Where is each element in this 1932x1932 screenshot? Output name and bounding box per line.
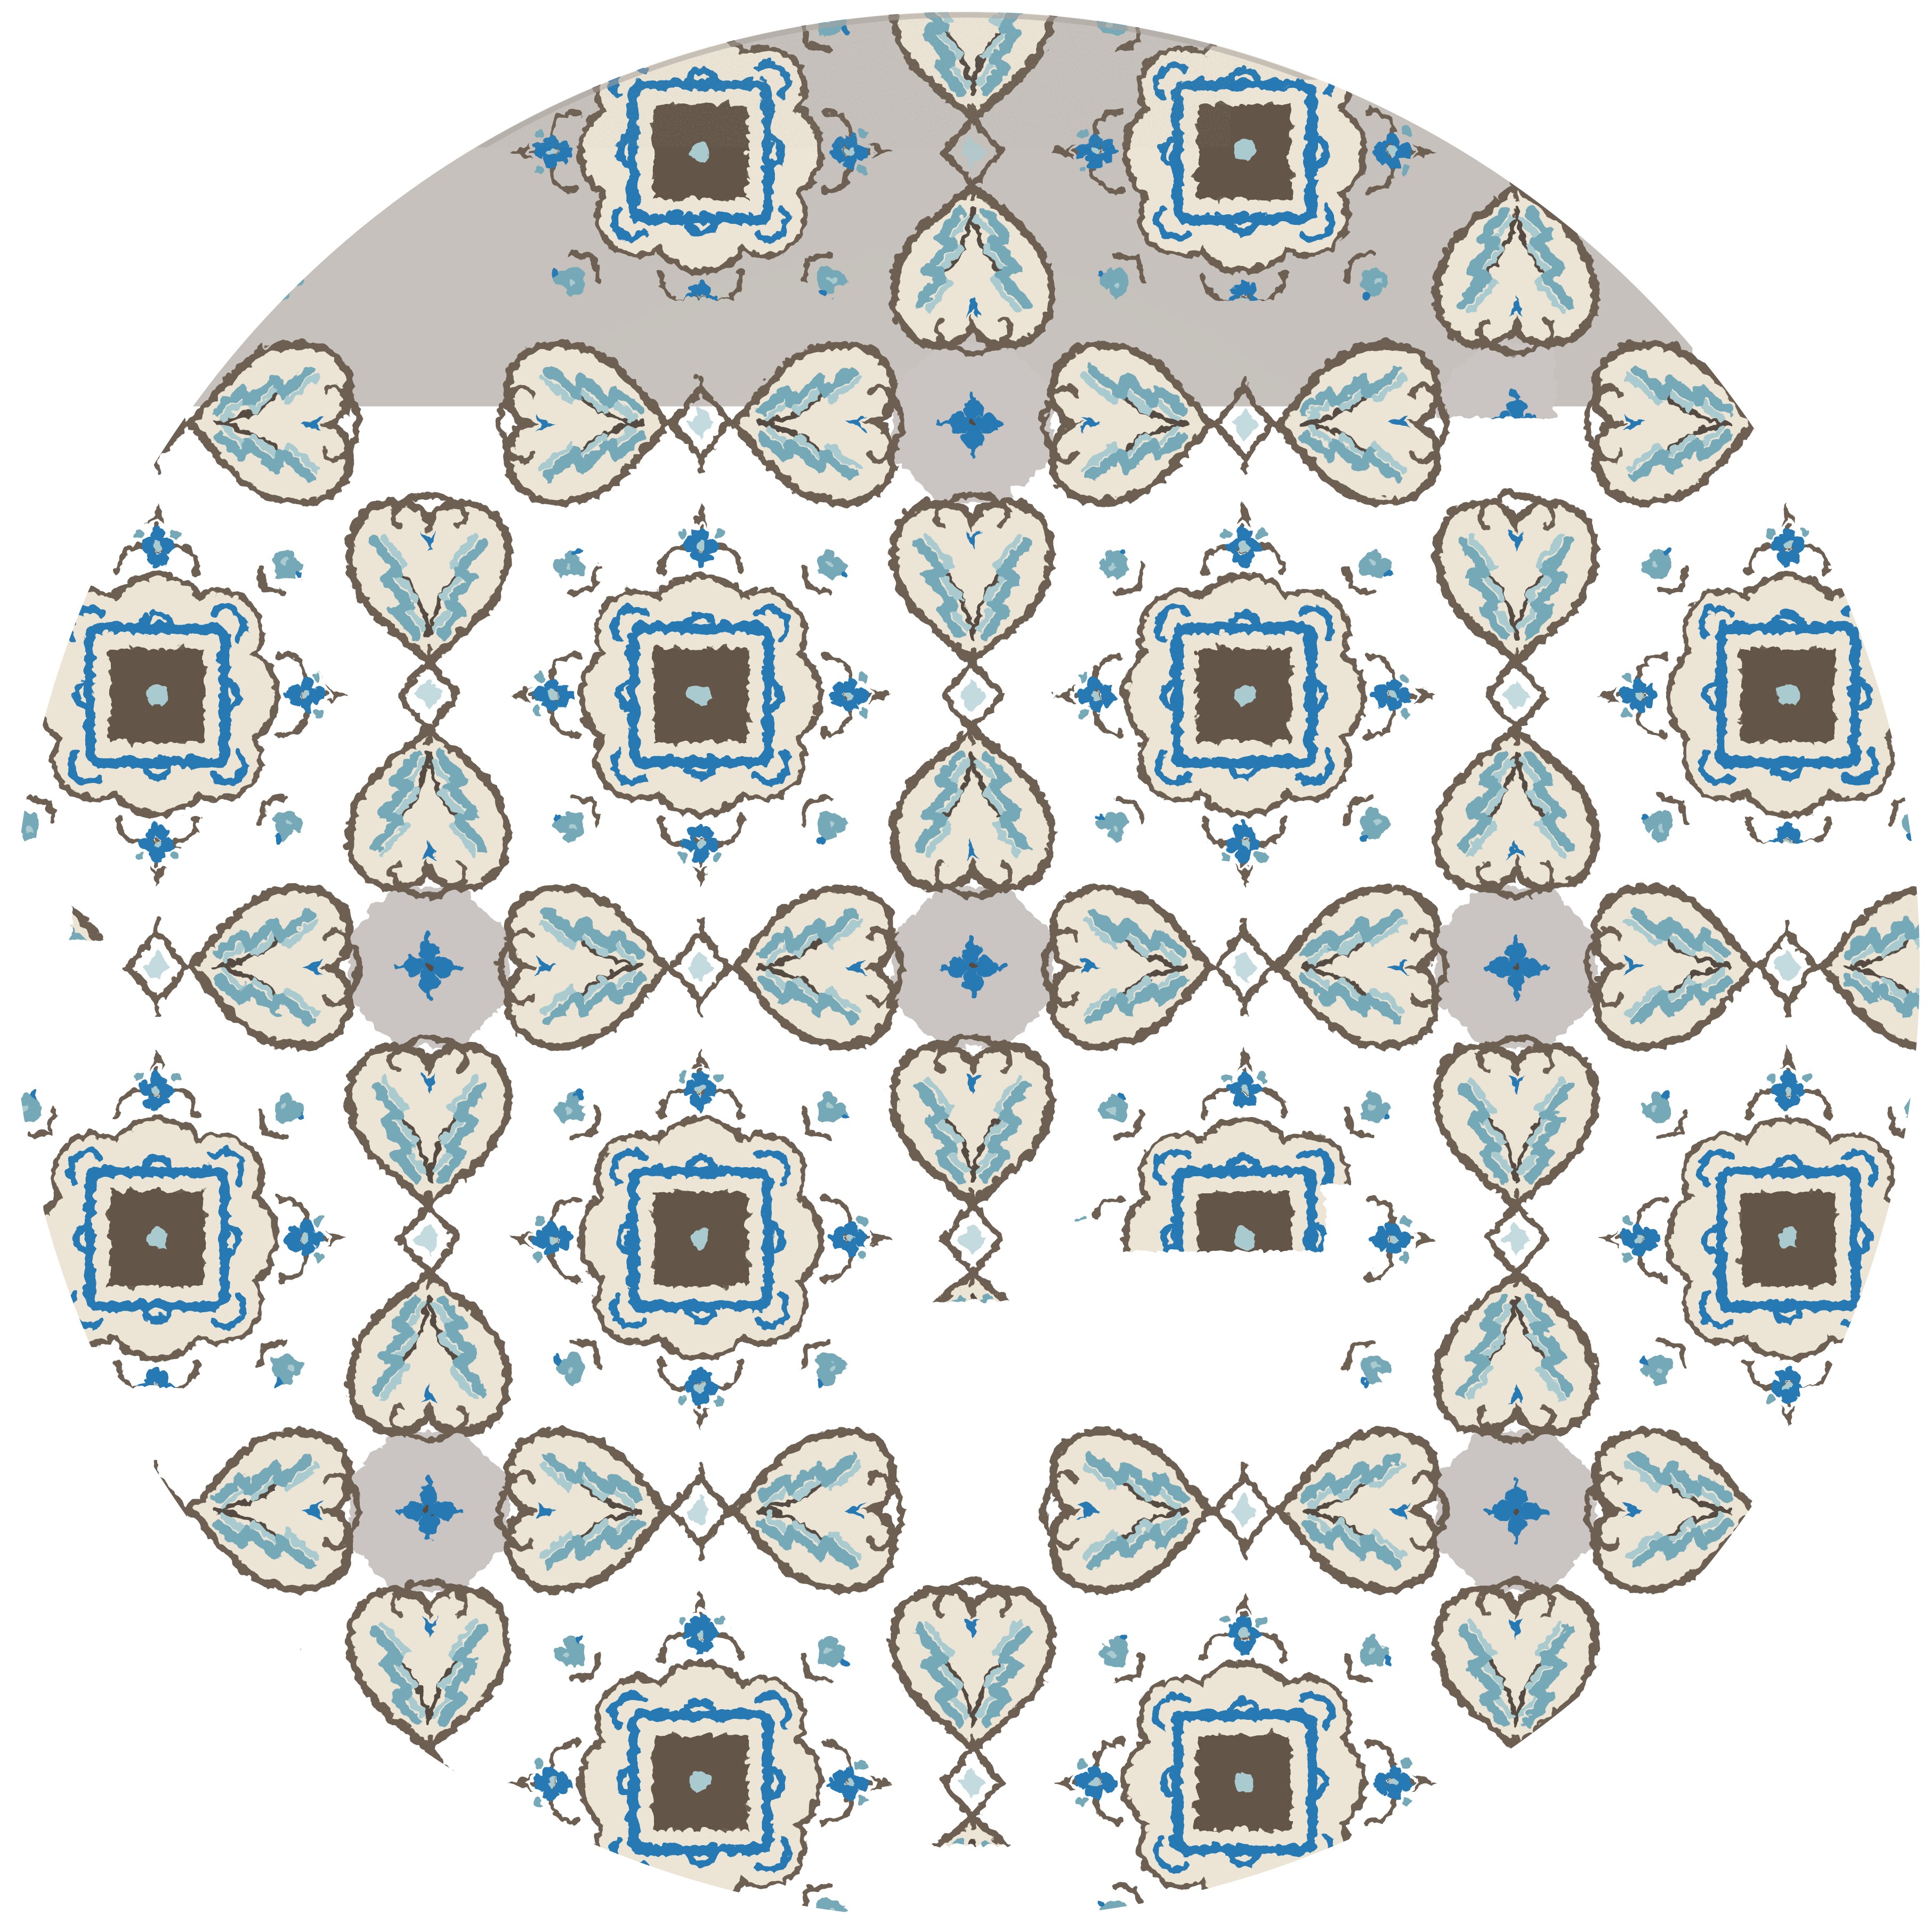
square-scroll-medallion (1594, 1589, 1932, 1932)
wool-grain-light (0, 0, 1932, 1932)
rug-product-photo (0, 0, 1932, 1932)
rug-clipped-area (0, 0, 1932, 1932)
square-scroll-medallion (1594, 0, 1932, 341)
round-rug (0, 0, 1932, 1932)
